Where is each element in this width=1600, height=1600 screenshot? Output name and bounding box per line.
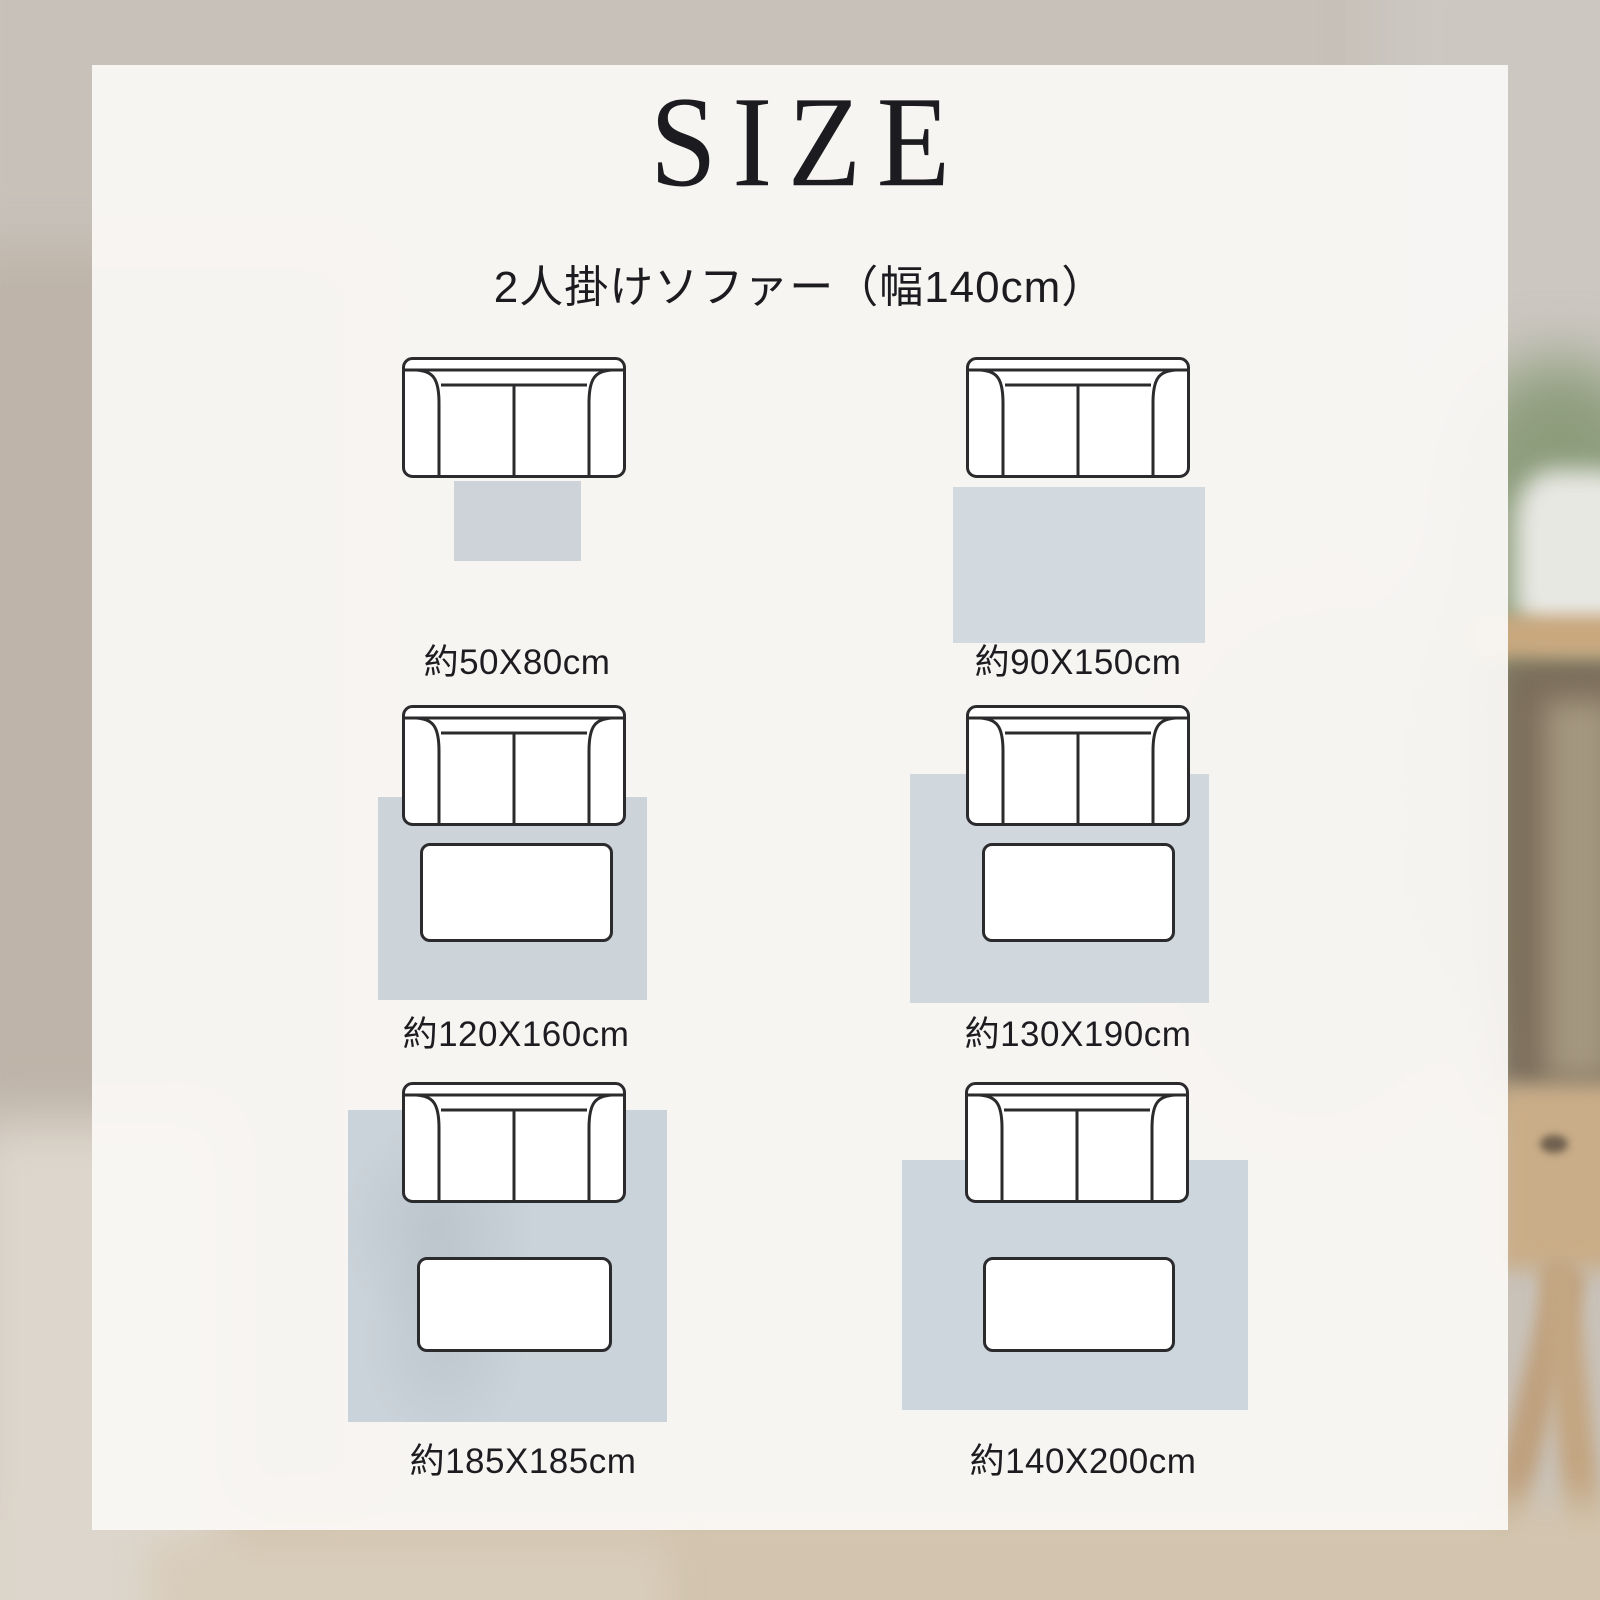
floor-glow-blur xyxy=(150,1540,670,1600)
size-label-130x190: 約130X190cm xyxy=(928,1013,1228,1057)
sofa-top-view-icon xyxy=(965,1082,1189,1203)
sofa-top-view-icon xyxy=(966,357,1190,478)
rug-90x150 xyxy=(953,487,1205,643)
size-label-140x200: 約140X200cm xyxy=(933,1440,1233,1484)
rug-size-guide-graphic: SIZE 2人掛けソファー（幅140cm） 約50X80cm 約90X150cm… xyxy=(0,0,1600,1600)
subtitle: 2人掛けソファー（幅140cm） xyxy=(0,264,1600,312)
sofa-top-view-icon xyxy=(966,705,1190,826)
drawer-knob-blur xyxy=(1540,1135,1568,1153)
rug-50x80 xyxy=(454,481,581,561)
coffee-table xyxy=(420,843,613,942)
page-title: SIZE xyxy=(0,77,1600,207)
cabinet-slat-blur xyxy=(1545,700,1600,1080)
size-label-185x185: 約185X185cm xyxy=(373,1440,673,1484)
coffee-table xyxy=(983,1257,1175,1352)
sofa-top-view-icon xyxy=(402,357,626,478)
coffee-table xyxy=(982,843,1175,942)
size-label-120x160: 約120X160cm xyxy=(366,1013,666,1057)
size-label-50x80: 約50X80cm xyxy=(367,641,667,685)
drawer-blur xyxy=(1498,1085,1600,1270)
size-label-90x150: 約90X150cm xyxy=(928,641,1228,685)
sofa-top-view-icon xyxy=(402,1082,626,1203)
sofa-top-view-icon xyxy=(402,705,626,826)
coffee-table xyxy=(417,1257,612,1352)
